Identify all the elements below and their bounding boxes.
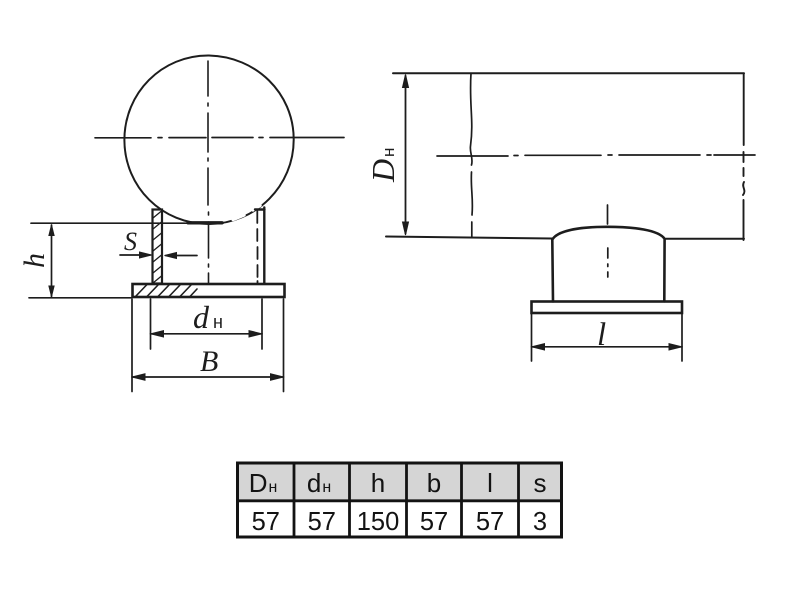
svg-text:57: 57 <box>308 508 336 536</box>
svg-text:3: 3 <box>533 508 547 536</box>
svg-text:S: S <box>124 227 137 256</box>
svg-text:D: D <box>365 159 401 183</box>
svg-text:57: 57 <box>420 508 448 536</box>
svg-text:h: h <box>371 468 385 498</box>
svg-text:d: d <box>193 299 210 335</box>
svg-text:B: B <box>200 345 218 378</box>
svg-text:150: 150 <box>357 508 400 536</box>
svg-text:l: l <box>487 468 493 498</box>
svg-text:l: l <box>597 317 606 353</box>
svg-text:s: s <box>534 468 547 498</box>
svg-text:57: 57 <box>476 508 504 536</box>
svg-text:н: н <box>379 148 398 157</box>
svg-text:h: h <box>18 253 51 268</box>
svg-text:b: b <box>427 468 441 498</box>
svg-text:57: 57 <box>252 508 280 536</box>
svg-text:н: н <box>213 312 223 332</box>
